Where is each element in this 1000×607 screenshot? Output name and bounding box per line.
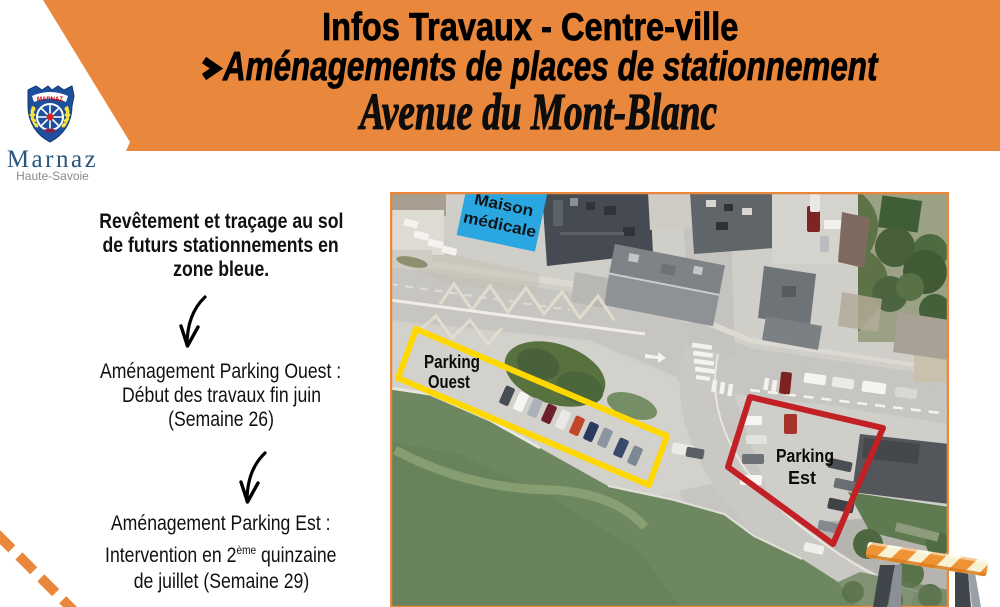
svg-text:Parking: Parking <box>776 446 834 466</box>
svg-text:Parking: Parking <box>424 352 480 372</box>
svg-text:Ouest: Ouest <box>428 372 470 392</box>
svg-text:MARNAZ: MARNAZ <box>37 97 63 103</box>
svg-text:Est: Est <box>788 468 816 488</box>
